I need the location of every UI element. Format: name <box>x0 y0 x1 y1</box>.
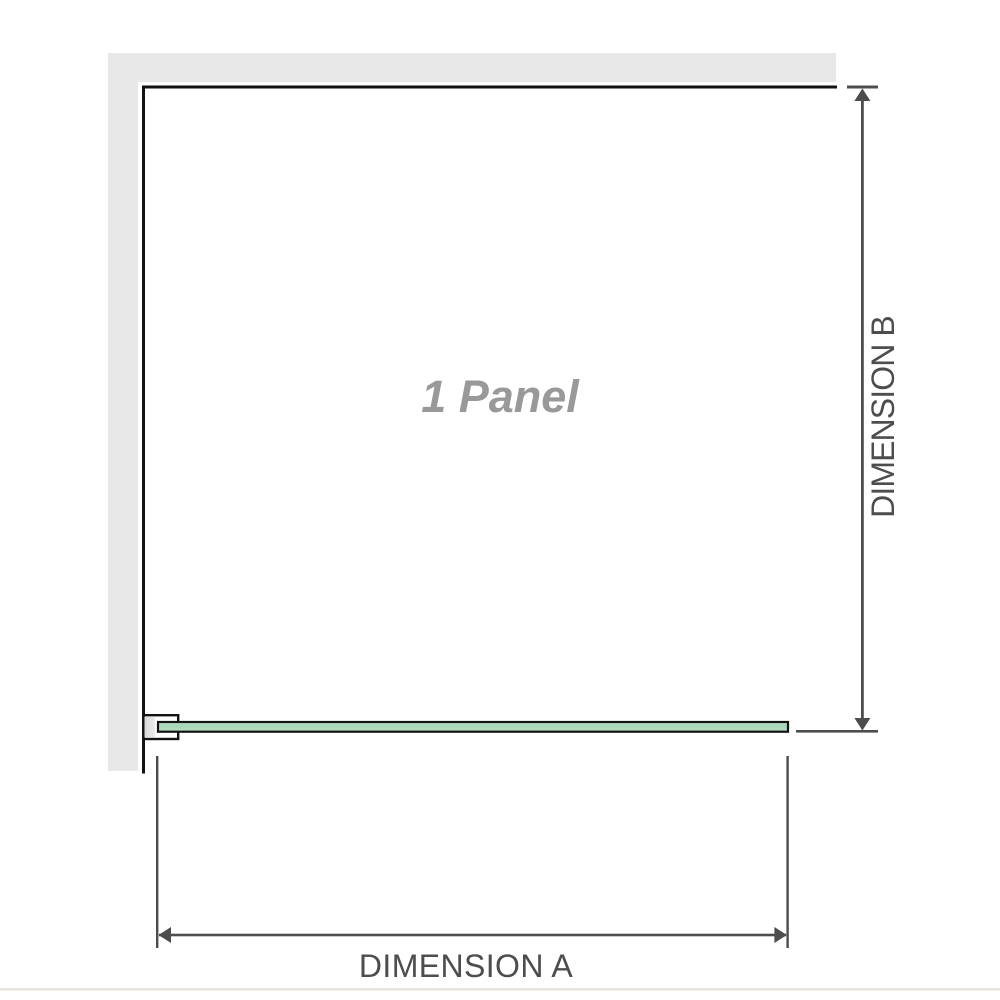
svg-text:1 Panel: 1 Panel <box>421 371 580 422</box>
svg-text:DIMENSION B: DIMENSION B <box>865 316 901 518</box>
svg-text:DIMENSION A: DIMENSION A <box>359 948 573 984</box>
